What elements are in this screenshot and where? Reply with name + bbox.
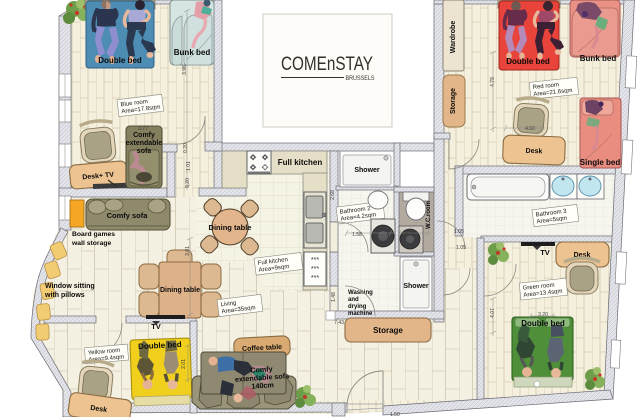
- svg-text:Bunk bed: Bunk bed: [580, 54, 617, 63]
- svg-text:and: and: [348, 297, 359, 303]
- svg-text:Window sitting: Window sitting: [45, 283, 95, 290]
- svg-text:machine: machine: [348, 311, 373, 317]
- svg-text:Storage: Storage: [450, 88, 457, 114]
- svg-text:1.05: 1.05: [454, 229, 464, 235]
- svg-text:Dining table: Dining table: [160, 287, 200, 294]
- svg-text:Comfy sofa: Comfy sofa: [107, 211, 149, 220]
- svg-text:3.77: 3.77: [138, 126, 148, 132]
- svg-text:Wardrobe: Wardrobe: [450, 21, 457, 54]
- svg-text:2.01: 2.01: [181, 359, 187, 369]
- svg-text:0.20: 0.20: [185, 178, 191, 188]
- svg-text:***: ***: [311, 266, 319, 273]
- svg-text:4.60: 4.60: [525, 126, 535, 132]
- svg-text:3.01: 3.01: [185, 246, 191, 256]
- svg-text:Shower: Shower: [403, 283, 429, 290]
- svg-text:drying: drying: [348, 304, 367, 310]
- svg-text:2.68: 2.68: [330, 190, 336, 200]
- svg-text:Full kitchen: Full kitchen: [278, 158, 323, 167]
- svg-text:1.01: 1.01: [186, 161, 192, 171]
- svg-text:Storage: Storage: [373, 326, 403, 335]
- svg-text:Double bed: Double bed: [98, 56, 142, 65]
- svg-text:***: ***: [311, 257, 319, 264]
- svg-text:TV: TV: [540, 248, 550, 257]
- svg-text:COMEnSTAY: COMEnSTAY: [281, 54, 373, 75]
- svg-text:extendable: extendable: [126, 140, 163, 147]
- svg-text:sofa: sofa: [137, 148, 152, 155]
- svg-text:Washing: Washing: [348, 290, 373, 296]
- svg-text:3.20: 3.20: [538, 312, 548, 318]
- svg-text:140cm: 140cm: [251, 380, 274, 391]
- svg-text:1.50: 1.50: [390, 412, 400, 417]
- svg-text:1.48: 1.48: [331, 292, 337, 302]
- svg-text:Board games: Board games: [72, 231, 115, 238]
- svg-text:***: ***: [311, 275, 319, 282]
- svg-text:Shower: Shower: [354, 167, 380, 174]
- svg-text:with pillows: with pillows: [44, 292, 85, 299]
- svg-text:W.C.room: W.C.room: [426, 201, 432, 229]
- svg-text:1.05: 1.05: [456, 245, 466, 251]
- svg-text:Dining table: Dining table: [209, 223, 252, 232]
- svg-text:Double bed: Double bed: [506, 57, 550, 66]
- svg-text:1.58: 1.58: [352, 232, 362, 238]
- svg-text:7.43: 7.43: [334, 320, 344, 326]
- svg-text:Bunk bed: Bunk bed: [174, 48, 211, 57]
- svg-text:Single bed: Single bed: [580, 158, 621, 167]
- svg-text:wall storage: wall storage: [71, 240, 112, 247]
- svg-text:Double bed: Double bed: [521, 319, 565, 328]
- svg-text:0.60: 0.60: [405, 232, 415, 238]
- svg-text:Desk: Desk: [525, 148, 542, 156]
- svg-text:BRUSSELS: BRUSSELS: [346, 76, 375, 82]
- svg-text:3.96: 3.96: [182, 65, 188, 75]
- svg-text:0.20: 0.20: [183, 143, 189, 153]
- svg-text:4.07: 4.07: [490, 308, 496, 318]
- svg-text:Comfy: Comfy: [133, 132, 155, 139]
